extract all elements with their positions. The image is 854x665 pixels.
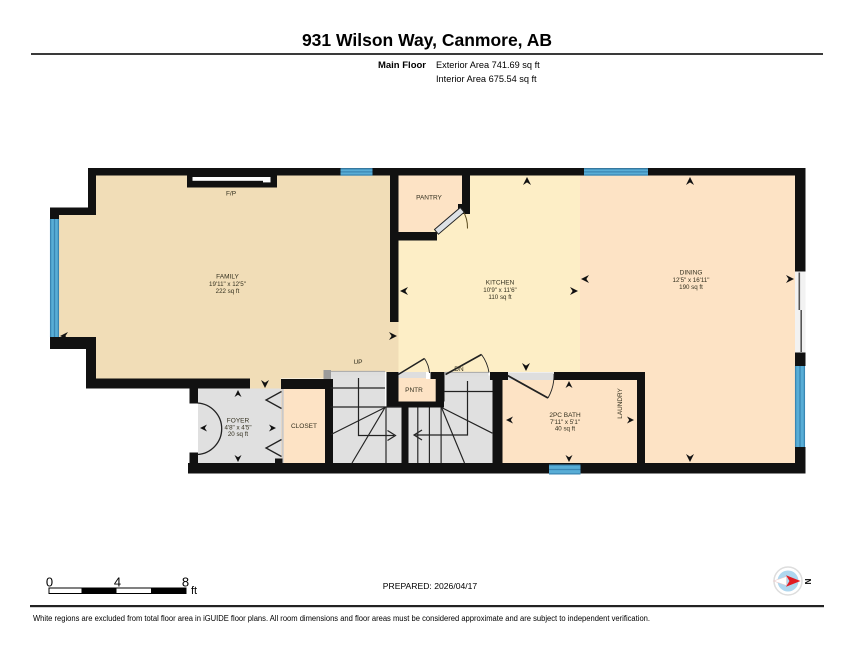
svg-text:N: N bbox=[803, 579, 812, 585]
svg-text:DN: DN bbox=[454, 366, 464, 373]
svg-text:40 sq ft: 40 sq ft bbox=[555, 426, 576, 433]
svg-text:ft: ft bbox=[191, 585, 197, 597]
svg-text:FAMILY: FAMILY bbox=[216, 274, 239, 281]
svg-text:F/P: F/P bbox=[226, 191, 236, 198]
svg-text:White regions are excluded fro: White regions are excluded from total fl… bbox=[33, 614, 650, 623]
svg-text:2PC BATH: 2PC BATH bbox=[549, 412, 581, 419]
svg-text:CLOSET: CLOSET bbox=[291, 423, 317, 430]
svg-text:190 sq ft: 190 sq ft bbox=[679, 284, 703, 291]
svg-text:UP: UP bbox=[353, 359, 362, 366]
svg-text:FOYER: FOYER bbox=[227, 418, 250, 425]
svg-text:20 sq ft: 20 sq ft bbox=[228, 431, 249, 438]
svg-text:PREPARED: 2026/04/17: PREPARED: 2026/04/17 bbox=[383, 581, 478, 591]
svg-text:4: 4 bbox=[114, 575, 121, 590]
svg-text:10'9" x 11'6": 10'9" x 11'6" bbox=[483, 287, 516, 294]
svg-text:0: 0 bbox=[46, 575, 53, 590]
svg-text:Main Floor: Main Floor bbox=[378, 60, 426, 71]
svg-text:KITCHEN: KITCHEN bbox=[486, 280, 515, 287]
svg-text:12'5" x 16'11": 12'5" x 16'11" bbox=[673, 277, 710, 284]
svg-text:Exterior Area 741.69 sq ft: Exterior Area 741.69 sq ft bbox=[436, 60, 540, 70]
svg-text:LAUNDRY: LAUNDRY bbox=[617, 388, 624, 419]
svg-text:8: 8 bbox=[182, 575, 189, 590]
svg-text:19'11" x 12'5": 19'11" x 12'5" bbox=[209, 281, 246, 288]
svg-text:PANTRY: PANTRY bbox=[416, 195, 442, 202]
svg-text:222 sq ft: 222 sq ft bbox=[216, 288, 240, 295]
svg-text:Interior Area 675.54 sq ft: Interior Area 675.54 sq ft bbox=[436, 74, 537, 84]
svg-text:PNTR: PNTR bbox=[405, 387, 423, 394]
svg-text:DINING: DINING bbox=[680, 270, 703, 277]
svg-text:931 Wilson Way, Canmore, AB: 931 Wilson Way, Canmore, AB bbox=[302, 30, 552, 50]
svg-text:110 sq ft: 110 sq ft bbox=[488, 294, 512, 301]
